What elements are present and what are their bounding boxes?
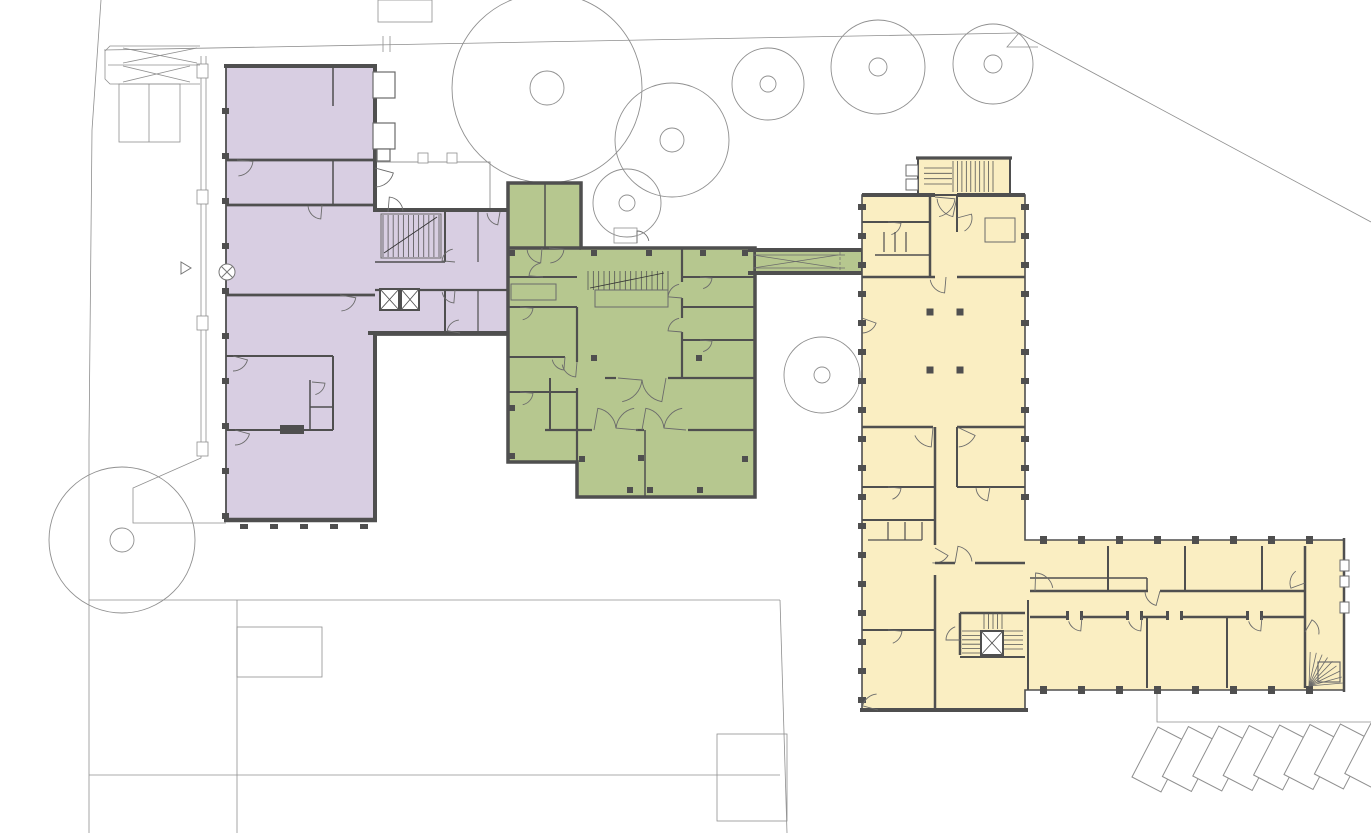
floor-plan — [0, 0, 1371, 833]
10 — [222, 513, 229, 519]
tree — [660, 128, 684, 152]
markers — [181, 262, 235, 280]
west-wing-outline — [226, 66, 510, 520]
center-wing — [508, 183, 862, 497]
8 — [1306, 686, 1313, 694]
east-wing — [858, 158, 1349, 710]
18 — [858, 697, 866, 703]
stair-tower — [918, 158, 1010, 195]
tree — [760, 76, 776, 92]
tree — [530, 71, 564, 105]
west-wing — [222, 66, 510, 529]
tree — [814, 367, 830, 383]
5 — [360, 524, 368, 529]
parking — [1132, 724, 1371, 793]
tree — [110, 528, 134, 552]
8 — [1306, 536, 1313, 544]
courtyard — [373, 162, 490, 212]
floor-plan-svg — [0, 0, 1371, 833]
link-bridge — [755, 250, 862, 273]
tree — [869, 58, 887, 76]
11 — [1021, 494, 1029, 500]
2 — [1180, 611, 1183, 620]
entrance-arrow — [181, 262, 191, 274]
tree — [984, 55, 1002, 73]
tree — [619, 195, 635, 211]
